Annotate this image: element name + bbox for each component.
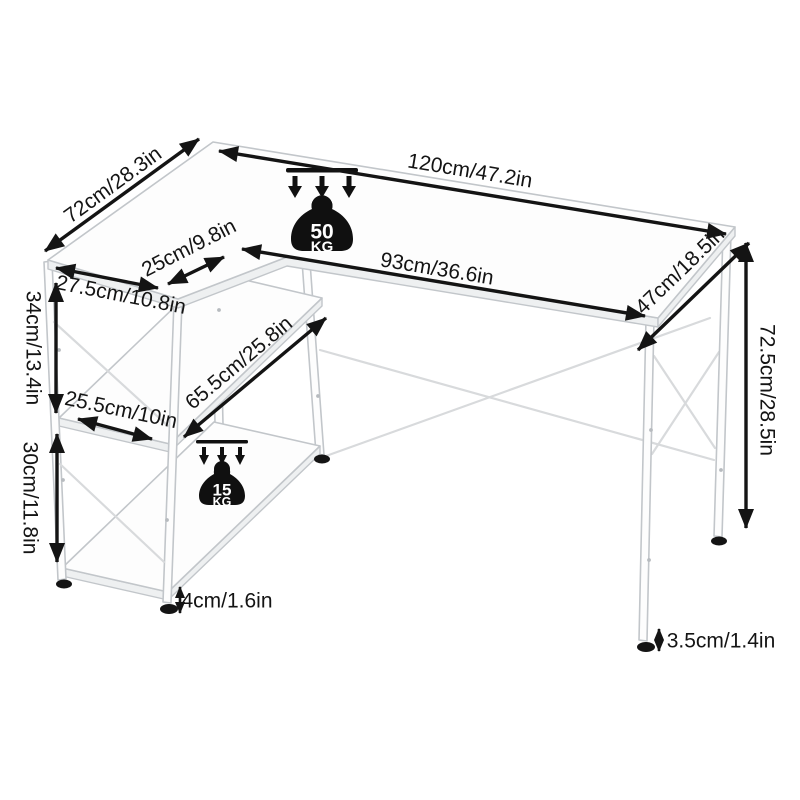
screw-dot	[649, 428, 653, 432]
foot-pad	[637, 642, 655, 652]
bottom-shelf	[62, 422, 320, 600]
bottom-shelf-top	[62, 422, 320, 592]
foot-pad	[160, 604, 178, 614]
dim-4cm: 4cm/1.6in	[180, 587, 273, 613]
under-desk-brace	[320, 350, 714, 460]
right-panel-brace	[654, 356, 715, 448]
screw-dot	[647, 558, 651, 562]
dim-3-5cm: 3.5cm/1.4in	[659, 629, 775, 653]
dim-label: 30cm/11.8in	[19, 442, 42, 555]
screw-dot	[719, 468, 723, 472]
tower-post-inner	[302, 261, 324, 455]
desk-leg-front-right	[639, 318, 654, 641]
load-unit: KG	[311, 239, 334, 256]
dim-label: 4cm/1.6in	[181, 590, 272, 613]
dim-72-5cm: 72.5cm/28.5in	[746, 243, 779, 528]
dim-30cm: 30cm/11.8in	[19, 434, 58, 562]
screw-dot	[61, 478, 65, 482]
dim-label: 34cm/13.4in	[22, 291, 45, 405]
dim-label: 3.5cm/1.4in	[667, 630, 776, 653]
screw-dot	[217, 308, 221, 312]
screw-dot	[165, 518, 169, 522]
desk-dimension-diagram-page: 50 KG 15 KG 120cm/47.2in 72cm/28.3in 25c…	[0, 0, 800, 800]
foot-pad	[711, 537, 727, 546]
dim-label: 72.5cm/28.5in	[756, 324, 779, 456]
desk-dimension-diagram: 50 KG 15 KG 120cm/47.2in 72cm/28.3in 25c…	[0, 0, 800, 800]
screw-dot	[316, 394, 320, 398]
load-unit: KG	[213, 495, 232, 509]
foot-pad	[314, 455, 330, 464]
foot-pad	[56, 580, 72, 589]
load-bar	[196, 440, 248, 444]
desk-leg-back-right	[714, 233, 731, 537]
